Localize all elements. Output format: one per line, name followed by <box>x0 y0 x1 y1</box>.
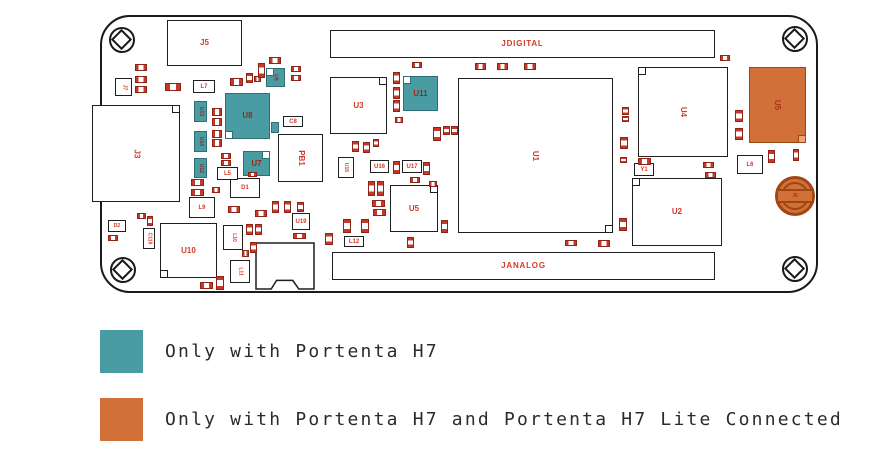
component-L7: L7 <box>193 80 215 93</box>
component-label: U1 <box>531 150 539 160</box>
passive-chip <box>246 224 253 235</box>
component-label: U19 <box>295 219 306 225</box>
passive-chip <box>212 139 222 147</box>
component-J7: J7 <box>115 78 132 96</box>
corner-notch <box>172 105 180 113</box>
legend-label-portenta-h7-lite: Only with Portenta H7 and Portenta H7 Li… <box>165 409 843 430</box>
passive-chip <box>216 276 224 290</box>
component-label: JANALOG <box>501 262 546 270</box>
component-label: JDIGITAL <box>501 40 543 48</box>
corner-notch <box>266 68 274 76</box>
passive-chip <box>363 142 370 153</box>
component-label: L12 <box>349 239 359 245</box>
passive-chip <box>524 63 536 70</box>
corner-notch <box>605 225 613 233</box>
component-label: U5 <box>773 100 781 110</box>
passive-chip <box>165 83 181 91</box>
mounting-hole <box>782 256 808 282</box>
passive-chip <box>246 73 253 83</box>
passive-chip <box>410 177 420 183</box>
component-U11: U11 <box>403 76 438 111</box>
passive-chip <box>325 233 333 245</box>
passive-chip <box>638 158 651 165</box>
component-label: L11 <box>238 267 243 275</box>
component-label: U3 <box>353 102 363 110</box>
component-label: U15 <box>344 163 349 172</box>
passive-chip <box>373 139 379 147</box>
passive-chip <box>108 235 118 241</box>
component-J5: J5 <box>167 20 242 66</box>
hole-diamond-icon <box>784 28 805 49</box>
battery-bar-icon: J6 <box>776 189 814 203</box>
passive-chip <box>191 179 204 186</box>
hole-diamond-icon <box>784 258 805 279</box>
component-U8: U8 <box>225 93 270 139</box>
passive-chip <box>768 150 775 163</box>
component-label: L10 <box>231 233 236 242</box>
component-PB1: PB1 <box>278 134 323 182</box>
passive-chip <box>343 219 351 233</box>
passive-chip <box>255 224 262 235</box>
passive-chip <box>135 76 147 83</box>
component-label: U12 <box>198 163 203 172</box>
passive-chip <box>221 160 231 166</box>
passive-chip <box>565 240 577 246</box>
component-label: Y1 <box>640 167 647 173</box>
component-C119: C119 <box>143 228 155 249</box>
passive-chip <box>620 157 627 163</box>
component-C8: C8 <box>283 116 303 127</box>
component-label: U2 <box>672 208 682 216</box>
passive-chip <box>297 202 304 212</box>
passive-chip <box>361 219 369 233</box>
component-label: L7 <box>200 84 207 90</box>
passive-chip <box>433 127 441 141</box>
corner-notch <box>798 135 806 143</box>
component-label: U5 <box>409 205 419 213</box>
passive-chip <box>393 72 400 84</box>
component-label: U14 <box>198 137 203 146</box>
component-L6: L6 <box>737 155 763 174</box>
passive-chip <box>372 200 385 207</box>
component-unlabeled <box>271 122 279 133</box>
component-label: L6 <box>746 162 753 168</box>
component-U15: U15 <box>338 157 354 178</box>
component-label: U16 <box>374 164 385 170</box>
passive-chip <box>269 57 281 64</box>
passive-chip <box>293 233 306 239</box>
passive-chip <box>373 209 386 216</box>
component-U9: U9 <box>266 68 285 87</box>
passive-chip <box>393 100 400 112</box>
passive-chip <box>352 141 359 152</box>
component-label: J5 <box>200 39 209 47</box>
passive-chip <box>255 210 267 217</box>
passive-chip <box>291 75 301 81</box>
teal-swatch <box>100 330 143 373</box>
passive-chip <box>291 66 301 72</box>
hole-diamond-icon <box>111 29 132 50</box>
component-label: U4 <box>679 107 687 117</box>
component-label: U13 <box>198 107 203 116</box>
corner-notch <box>160 270 168 278</box>
passive-chip <box>497 63 508 70</box>
component-J6-battery-holder: J6 <box>775 176 815 216</box>
legend-label-portenta-h7: Only with Portenta H7 <box>165 341 439 362</box>
component-U19: U19 <box>292 213 310 230</box>
component-label: J7 <box>121 84 126 90</box>
passive-chip <box>284 201 291 213</box>
passive-chip <box>620 137 628 149</box>
component-U14: U14 <box>194 131 207 152</box>
passive-chip <box>735 110 743 122</box>
component-U1: U1 <box>458 78 613 233</box>
passive-chip <box>248 172 257 177</box>
component-U4: U4 <box>638 67 728 157</box>
passive-chip <box>475 63 486 70</box>
component-label: C8 <box>289 119 297 125</box>
component-L9: L9 <box>189 197 215 218</box>
corner-notch <box>638 67 646 75</box>
passive-chip <box>622 107 629 115</box>
component-U13: U13 <box>194 101 207 122</box>
corner-notch <box>379 77 387 85</box>
component-J3: J3 <box>92 105 180 202</box>
passive-chip <box>377 181 384 196</box>
corner-notch <box>262 151 270 159</box>
component-label: J6 <box>792 193 798 199</box>
corner-notch <box>632 178 640 186</box>
component-U5: U5 <box>749 67 806 143</box>
component-label: PB1 <box>297 150 305 166</box>
component-U2: U2 <box>632 178 722 246</box>
mounting-hole <box>109 27 135 53</box>
component-label: U8 <box>242 112 252 120</box>
component-D1: D1 <box>230 178 260 198</box>
component-L11: L11 <box>230 260 250 283</box>
component-label: D2 <box>114 224 120 229</box>
orange-swatch <box>100 398 143 441</box>
passive-chip <box>451 126 458 135</box>
component-label: U7 <box>251 160 261 168</box>
passive-chip <box>368 181 375 196</box>
passive-chip <box>393 161 400 174</box>
passive-chip <box>200 282 213 289</box>
component-label: L5 <box>224 171 231 177</box>
passive-chip <box>598 240 610 247</box>
passive-chip <box>703 162 714 168</box>
component-label: U17 <box>406 164 417 170</box>
passive-chip <box>135 64 147 71</box>
passive-chip <box>191 189 204 196</box>
passive-chip <box>212 108 222 116</box>
legend-item-portenta-h7: Only with Portenta H7 <box>100 330 439 373</box>
component-label: L9 <box>198 205 205 211</box>
pcb-assembly-diagram: J5JDIGITALJANALOGJ3U3U1U4U2U5U10J4PB1D1L… <box>0 0 893 457</box>
passive-chip <box>230 78 243 86</box>
component-label: J3 <box>132 149 140 158</box>
passive-chip <box>242 250 249 257</box>
passive-chip <box>272 201 279 213</box>
passive-chip <box>395 117 403 123</box>
passive-chip <box>619 218 627 231</box>
mounting-hole <box>110 257 136 283</box>
passive-chip <box>393 87 400 99</box>
component-label: U11 <box>413 90 427 98</box>
passive-chip <box>412 62 422 68</box>
component-label: C119 <box>147 233 152 245</box>
passive-chip <box>147 216 153 226</box>
component-U17: U17 <box>402 160 422 173</box>
component-JANALOG: JANALOG <box>332 252 715 280</box>
component-U10: U10 <box>160 223 217 278</box>
passive-chip <box>212 130 222 138</box>
passive-chip <box>423 162 430 175</box>
passive-chip <box>221 153 231 159</box>
component-L12: L12 <box>344 236 364 247</box>
passive-chip <box>250 242 257 253</box>
passive-chip <box>407 237 414 248</box>
passive-chip <box>793 149 799 161</box>
passive-chip <box>228 206 240 213</box>
passive-chip <box>212 187 220 193</box>
component-J4: J4 <box>255 242 315 290</box>
passive-chip <box>720 55 730 61</box>
component-label: U10 <box>181 247 196 255</box>
corner-notch <box>225 131 233 139</box>
passive-chip <box>705 172 716 178</box>
passive-chip <box>735 128 743 140</box>
passive-chip <box>443 126 450 135</box>
corner-notch <box>403 76 411 84</box>
component-L5: L5 <box>217 167 238 180</box>
passive-chip <box>212 118 222 126</box>
component-D2: D2 <box>108 220 126 232</box>
passive-chip <box>137 213 146 219</box>
mounting-hole <box>782 26 808 52</box>
passive-chip <box>429 181 437 187</box>
passive-chip <box>258 63 265 78</box>
passive-chip <box>622 116 629 122</box>
component-JDIGITAL: JDIGITAL <box>330 30 715 58</box>
hole-diamond-icon <box>112 259 133 280</box>
sd-card-outline <box>255 242 315 290</box>
component-label: D1 <box>241 185 249 191</box>
component-U16: U16 <box>370 160 389 173</box>
passive-chip <box>441 220 448 233</box>
component-U5: U5 <box>390 185 438 232</box>
component-U12: U12 <box>194 158 207 178</box>
legend-item-portenta-h7-lite: Only with Portenta H7 and Portenta H7 Li… <box>100 398 843 441</box>
component-L10: L10 <box>223 225 243 250</box>
passive-chip <box>135 86 147 93</box>
component-U3: U3 <box>330 77 387 134</box>
